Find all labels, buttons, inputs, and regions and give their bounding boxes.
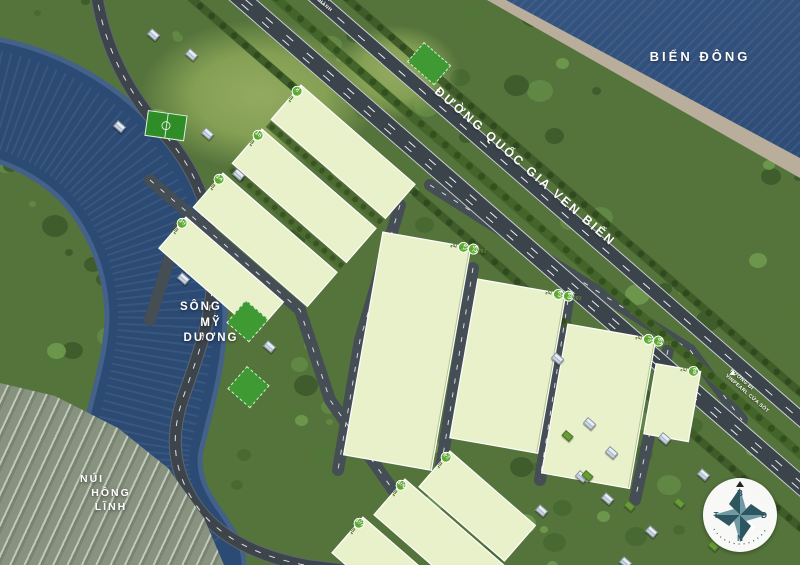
compass-graphic: B Đ N T	[703, 478, 777, 552]
villa-house	[535, 504, 549, 517]
compass-east-label: Đ	[761, 511, 767, 520]
villa-house	[147, 28, 161, 41]
villa-house	[177, 272, 191, 285]
compass-south-label: N	[737, 534, 743, 543]
villa-house	[551, 352, 565, 365]
green-roof-house	[561, 430, 573, 442]
villa-house	[583, 417, 597, 430]
villa-house	[605, 446, 619, 459]
green-roof-house	[673, 497, 685, 509]
villa-house	[601, 492, 615, 505]
masterplan-map: ĐƯỜNG QUỐC GIA VEN BIỂN HƯỚNG ĐI XUÂN TH…	[0, 0, 800, 565]
compass-north-label: B	[737, 489, 743, 498]
field-center-circle	[161, 121, 171, 131]
villa-house	[185, 48, 199, 61]
soccer-field	[144, 110, 187, 141]
villa-house	[113, 120, 127, 133]
villa-house	[619, 556, 633, 565]
green-roof-house	[623, 500, 635, 512]
villa-house	[263, 340, 277, 353]
villa-house	[201, 127, 215, 140]
park-plot	[407, 42, 451, 85]
sea-label: BIỂN ĐÔNG	[600, 48, 800, 66]
villa-house	[658, 432, 672, 445]
mountain-label: NÚIHỒNG LĨNH	[18, 472, 142, 486]
compass-rose: B Đ N T	[703, 478, 777, 552]
river-label: SÔNGMỸ DƯƠNG	[118, 300, 242, 316]
compass-west-label: T	[714, 511, 719, 520]
villa-house	[232, 168, 246, 181]
park-plot	[227, 366, 269, 408]
villa-house	[645, 525, 659, 538]
